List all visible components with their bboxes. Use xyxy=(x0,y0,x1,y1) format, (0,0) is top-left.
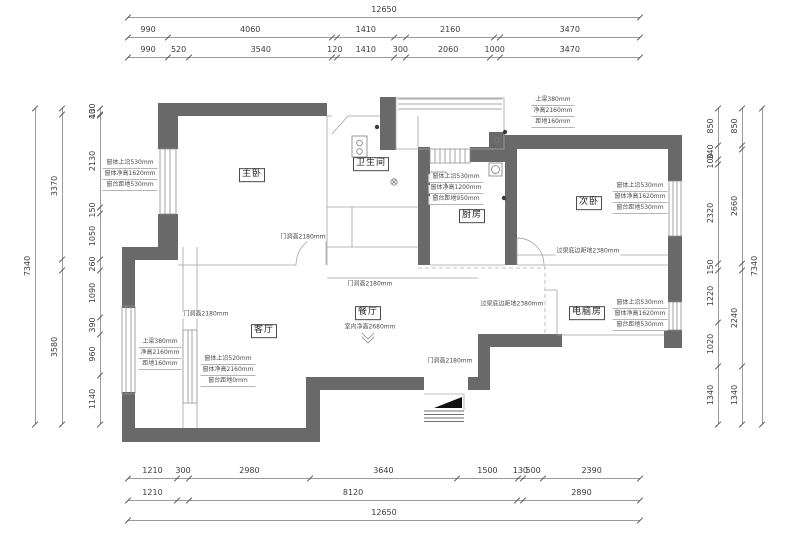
dimension-line-left-col-main xyxy=(62,108,63,424)
annotation-computer-room-window: 窗体上沿530mm窗体净高1620mm窗台距地530mm xyxy=(613,300,668,333)
dimension-value: 150 xyxy=(707,259,715,274)
dimension-value: 1090 xyxy=(89,283,97,303)
room-label-second-bedroom: 次卧 xyxy=(576,196,602,210)
room-label-dining-room: 餐厅 xyxy=(355,306,381,320)
dimension-value: 12650 xyxy=(371,509,396,517)
dimension-value: 850 xyxy=(707,119,715,134)
dimension-value: 1020 xyxy=(707,334,715,354)
dimension-line-right-col-detail xyxy=(718,108,719,424)
dimension-value: 1000 xyxy=(485,46,505,54)
dimension-value: 1340 xyxy=(731,385,739,405)
annotation-line: 上梁380mm xyxy=(139,339,182,348)
annotation-living-room-beam: 上梁380mm净高2160mm距地160mm xyxy=(139,339,182,372)
annotation-line: 距地160mm xyxy=(139,361,182,370)
dimension-tick xyxy=(637,497,643,503)
floorplan-canvas: 1265099040601410216034709905203540120141… xyxy=(0,0,795,537)
dimension-tick xyxy=(759,421,765,427)
note-lintel-clearance-1: 过梁底边距地2380mm xyxy=(556,249,621,256)
dimension-line-bottom-row-main xyxy=(128,500,640,501)
dimension-tick xyxy=(637,14,643,20)
annotation-kitchen-window: 窗体上沿530mm窗体净高1200mm窗台距地950mm xyxy=(429,174,484,207)
dimension-line-right-col-main xyxy=(742,108,743,424)
dimension-value: 1410 xyxy=(356,26,376,34)
dimension-value: 2660 xyxy=(731,196,739,216)
annotation-line: 窗台距地530mm xyxy=(613,205,668,214)
dimension-value: 2130 xyxy=(89,151,97,171)
dimension-value: 2240 xyxy=(731,308,739,328)
dimension-line-right-col-overall xyxy=(762,108,763,424)
annotation-balcony-beam: 上梁380mm净高2160mm距地160mm xyxy=(532,97,575,130)
dimension-tick xyxy=(637,54,643,60)
annotation-line: 窗体上沿520mm xyxy=(201,356,256,365)
dimension-value: 120 xyxy=(327,46,342,54)
room-label-computer-room: 电脑房 xyxy=(569,306,605,320)
dimension-tick xyxy=(637,475,643,481)
dimension-value: 2320 xyxy=(707,203,715,223)
dimension-value: 1220 xyxy=(707,286,715,306)
dimension-value: 990 xyxy=(140,26,155,34)
dimension-value: 1140 xyxy=(89,389,97,409)
dimension-value: 1210 xyxy=(142,467,162,475)
dimension-line-left-col-detail xyxy=(100,108,101,424)
dimension-value: 300 xyxy=(175,467,190,475)
annotation-line: 净高2160mm xyxy=(532,108,575,117)
annotation-line: 上梁380mm xyxy=(532,97,575,106)
dimension-value: 520 xyxy=(171,46,186,54)
room-label-master-bedroom: 主卧 xyxy=(239,168,265,182)
annotation-line: 窗台距地530mm xyxy=(103,182,158,191)
dimension-tick xyxy=(637,517,643,523)
dimension-value: 390 xyxy=(89,318,97,333)
annotation-living-room-window: 窗体上沿520mm窗体净高2160mm窗台距地0mm xyxy=(201,356,256,389)
dimension-value: 3370 xyxy=(51,176,59,196)
room-label-living-room: 客厅 xyxy=(251,324,277,338)
annotation-line: 窗体上沿530mm xyxy=(103,160,158,169)
dimension-value: 8120 xyxy=(343,489,363,497)
dimension-value: 260 xyxy=(89,257,97,272)
dimension-value: 500 xyxy=(526,467,541,475)
annotation-line: 窗台距地0mm xyxy=(201,378,256,387)
annotation-line: 窗体上沿530mm xyxy=(613,183,668,192)
note-door-height-hall: 门洞高2180mm xyxy=(347,282,394,289)
dimension-value: 990 xyxy=(140,46,155,54)
note-door-height-living: 门洞高2180mm xyxy=(183,312,230,319)
annotation-line: 窗体上沿530mm xyxy=(613,300,668,309)
dimension-line-bottom-row-overall xyxy=(128,520,640,521)
annotation-line: 窗体净高1620mm xyxy=(103,171,158,180)
room-label-bathroom: 卫生间 xyxy=(353,157,389,171)
dimension-line-top-row-overall xyxy=(128,17,640,18)
dimension-value: 150 xyxy=(89,203,97,218)
dimension-value: 2890 xyxy=(571,489,591,497)
dimension-tick xyxy=(739,421,745,427)
dimension-value: 1340 xyxy=(707,385,715,405)
annotation-line: 窗台距地950mm xyxy=(429,196,484,205)
dimension-value: 7340 xyxy=(24,256,32,276)
annotation-line: 窗体净高1620mm xyxy=(613,194,668,203)
annotation-line: 净高2160mm xyxy=(139,350,182,359)
dimension-value: 3640 xyxy=(373,467,393,475)
dimension-value: 2390 xyxy=(581,467,601,475)
dimension-value: 1050 xyxy=(89,226,97,246)
annotation-second-bedroom-window: 窗体上沿530mm窗体净高1620mm窗台距地530mm xyxy=(613,183,668,216)
note-ceiling-height: 室内净高2680mm xyxy=(344,325,397,332)
dimension-value: 2160 xyxy=(440,26,460,34)
dimension-value: 1210 xyxy=(142,489,162,497)
dimension-value: 850 xyxy=(731,119,739,134)
dimension-value: 3540 xyxy=(251,46,271,54)
dimension-value: 1500 xyxy=(477,467,497,475)
dimension-tick xyxy=(97,421,103,427)
room-label-kitchen: 厨房 xyxy=(459,209,485,223)
dimension-value: 4060 xyxy=(240,26,260,34)
annotation-line: 窗台距地530mm xyxy=(613,322,668,331)
dimension-value: 40 xyxy=(89,109,97,119)
text-overlay: 1265099040601410216034709905203540120141… xyxy=(0,0,795,537)
dimension-value: 2980 xyxy=(239,467,259,475)
note-door-height-entry: 门洞高2180mm xyxy=(427,359,474,366)
dimension-value: 3580 xyxy=(51,337,59,357)
dimension-line-top-row-detail xyxy=(128,57,640,58)
annotation-line: 距地160mm xyxy=(532,119,575,128)
dimension-value: 3470 xyxy=(560,46,580,54)
annotation-line: 窗体净高1200mm xyxy=(429,185,484,194)
annotation-line: 窗体上沿530mm xyxy=(429,174,484,183)
dimension-value: 300 xyxy=(393,46,408,54)
dimension-tick xyxy=(715,421,721,427)
dimension-value: 3470 xyxy=(560,26,580,34)
dimension-tick xyxy=(59,421,65,427)
annotation-line: 窗体净高2160mm xyxy=(201,367,256,376)
dimension-value: 12650 xyxy=(371,6,396,14)
dimension-value: 960 xyxy=(89,347,97,362)
annotation-line: 窗体净高1620mm xyxy=(613,311,668,320)
dimension-value: 100 xyxy=(707,154,715,169)
dimension-line-top-row-main xyxy=(128,37,640,38)
dimension-tick xyxy=(637,34,643,40)
dimension-value: 7340 xyxy=(751,256,759,276)
note-lintel-clearance-2: 过梁底边距地2380mm xyxy=(480,302,545,309)
dimension-line-bottom-row-detail xyxy=(128,478,640,479)
note-door-height-master: 门洞高2180mm xyxy=(280,235,327,242)
dimension-line-left-col-overall xyxy=(35,108,36,424)
dimension-value: 1410 xyxy=(356,46,376,54)
dimension-value: 2060 xyxy=(438,46,458,54)
dimension-tick xyxy=(32,421,38,427)
annotation-master-window: 窗体上沿530mm窗体净高1620mm窗台距地530mm xyxy=(103,160,158,193)
